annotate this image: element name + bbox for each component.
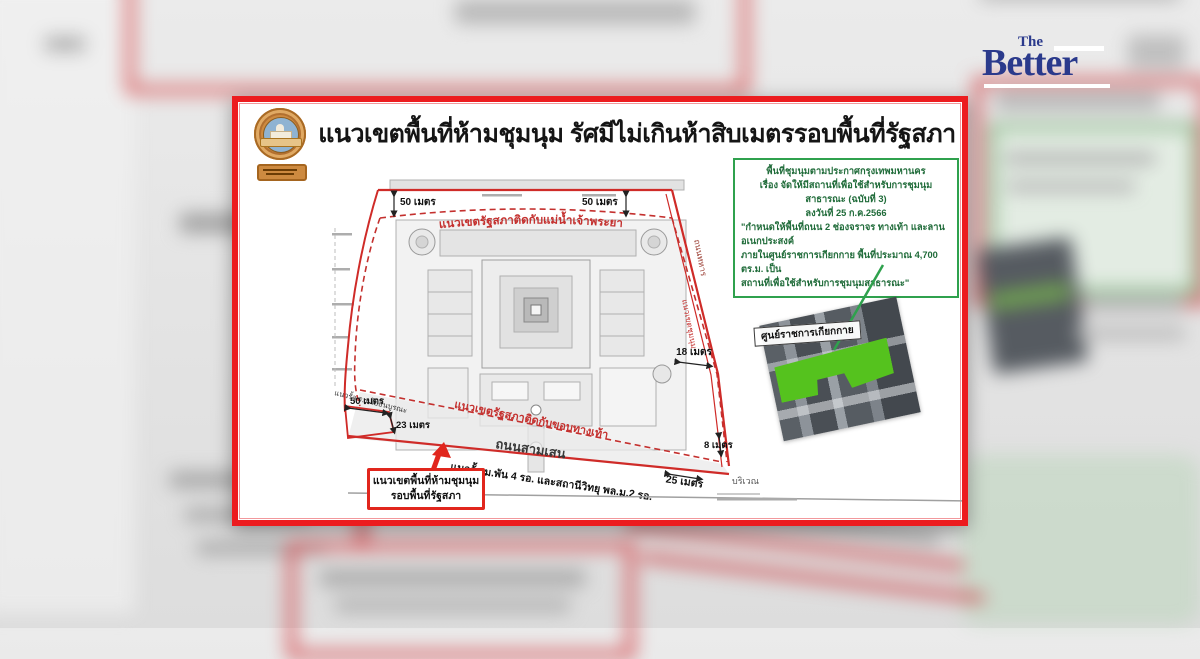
bg-green-tint [960, 455, 1200, 625]
logo-the-text: The [1018, 34, 1043, 51]
bg-photo-green [989, 282, 1071, 311]
metropolitan-police-emblem-icon [250, 108, 312, 192]
m8: 8 เมตร [704, 440, 734, 451]
bg-text-bar [335, 599, 570, 612]
area-label: บริเวณ [732, 476, 759, 486]
bg-text-bar [45, 37, 85, 51]
announcement-line: ภายในศูนย์ราชการเกียกกาย พื้นที่ประมาณ 4… [741, 249, 951, 277]
kiakkai-aerial-photo [759, 297, 920, 442]
m18: 18 เมตร [676, 347, 712, 358]
warning-line-1: แนวเขตพื้นที่ห้ามชุมนุม [372, 474, 480, 489]
page-title: แนวเขตพื้นที่ห้ามชุมนุม รัศมีไม่เกินห้าส… [316, 114, 958, 154]
emblem-banner [257, 164, 307, 181]
announcement-line: พื้นที่ชุมนุมตามประกาศกรุงเทพมหานคร [741, 165, 951, 179]
bg-text-bar [995, 93, 1160, 109]
bottom-margin-lines [717, 494, 760, 499]
parliament-site-plan-map: แนวเขตรัฐสภาติดกับแม่น้ำเจ้าพระยา แนวเขต… [332, 178, 762, 510]
infographic-card: แนวเขตพื้นที่ห้ามชุมนุม รัศมีไม่เกินห้าส… [232, 96, 968, 526]
the-better-logo: Better The [982, 36, 1118, 94]
bg-text-bar [320, 570, 585, 586]
m25: 25 เมตร [665, 473, 704, 490]
m50-top-left: 50 เมตร [400, 197, 436, 208]
announcement-line: สถานที่เพื่อใช้สำหรับการชุมนุมสาธารณะ" [741, 277, 951, 291]
bg-text-bar [455, 0, 695, 24]
announcement-line: เรื่อง จัดให้มีสถานที่เพื่อใช้สำหรับการช… [741, 179, 951, 207]
m23: 23 เมตร [396, 420, 431, 431]
bg-text-bar [1083, 297, 1183, 312]
bg-text-bar [1077, 327, 1185, 340]
bg-text-bar [1128, 35, 1185, 69]
no-assembly-warning-box: แนวเขตพื้นที่ห้ามชุมนุม รอบพื้นที่รัฐสภา [367, 468, 485, 510]
bg-left-column [0, 0, 135, 613]
bg-photo-blob [977, 237, 1088, 374]
bg-text-bar [1005, 153, 1155, 164]
thahan-road-label: ถนนทหาร [692, 238, 709, 277]
logo-white-bar-bottom [984, 84, 1110, 88]
m50-top-right: 50 เมตร [582, 197, 618, 208]
announcement-line: "กำหนดให้พื้นที่ถนน 2 ช่องจราจร ทางเท้า … [741, 221, 951, 249]
emblem-band [260, 138, 302, 147]
announcement-line: ลงวันที่ 25 ก.ค.2566 [741, 207, 951, 221]
warning-line-2: รอบพื้นที่รัฐสภา [372, 489, 480, 504]
bg-text-bar [1007, 181, 1135, 192]
assembly-area-announcement-box: พื้นที่ชุมนุมตามประกาศกรุงเทพมหานคร เรื่… [733, 158, 959, 298]
